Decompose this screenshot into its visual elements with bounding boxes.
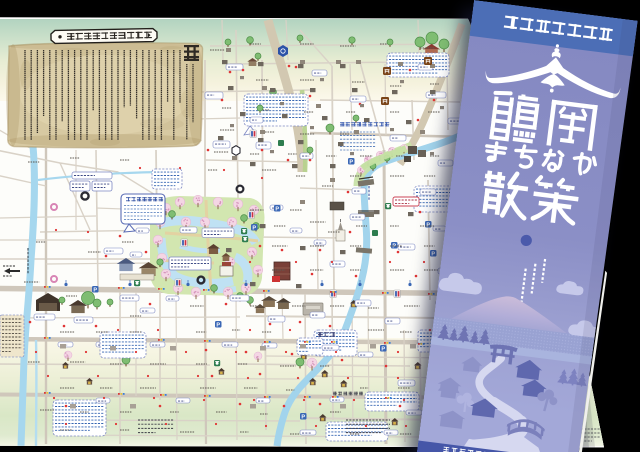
svg-text:P: P <box>301 414 305 420</box>
svg-text:P: P <box>93 287 97 293</box>
svg-text:P: P <box>431 251 435 257</box>
svg-text:P: P <box>216 322 220 328</box>
svg-text:P: P <box>252 225 256 231</box>
svg-text:P: P <box>275 206 279 212</box>
svg-text:P: P <box>381 346 385 352</box>
svg-text:P: P <box>349 159 353 165</box>
svg-text:P: P <box>426 222 430 228</box>
